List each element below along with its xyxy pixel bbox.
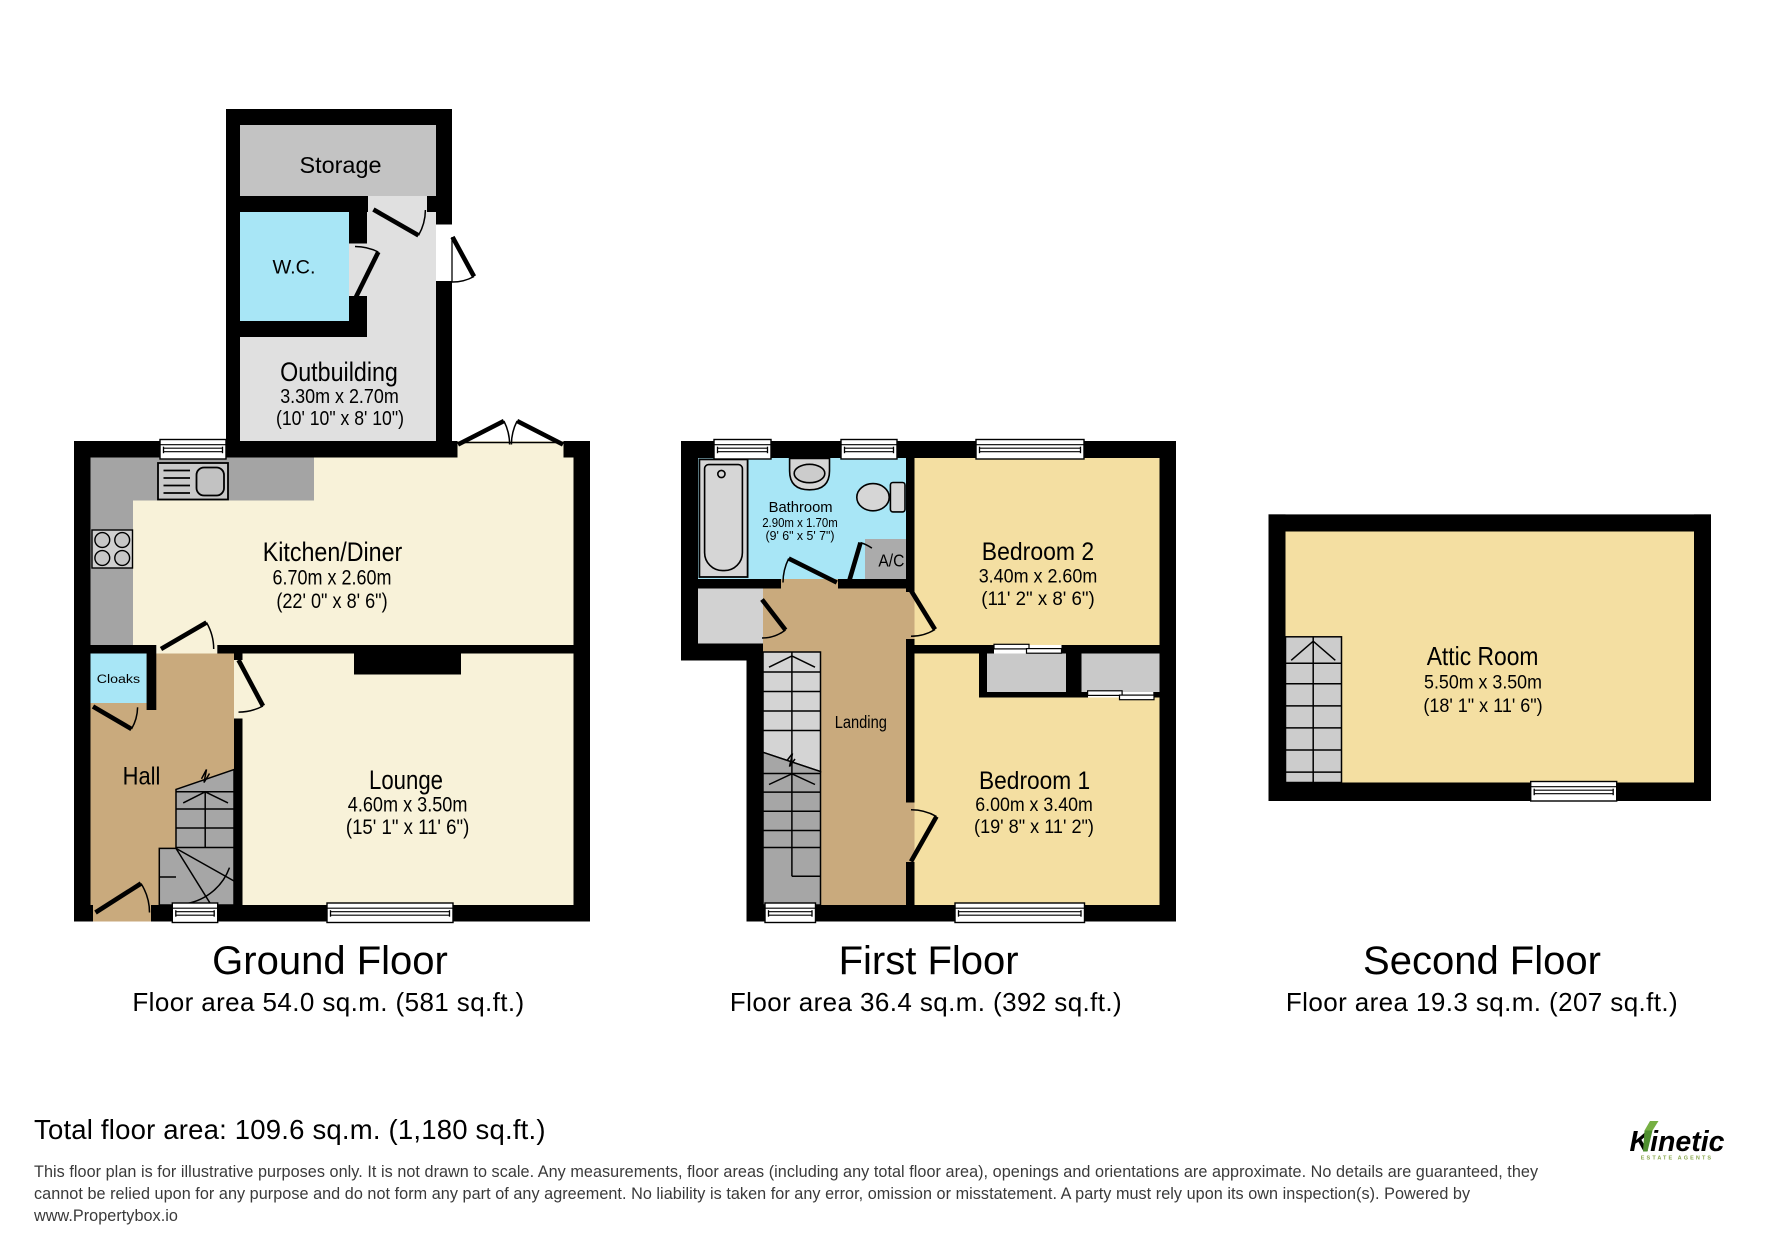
svg-text:A/C: A/C	[878, 550, 904, 570]
svg-text:Ground Floor: Ground Floor	[212, 939, 448, 983]
svg-text:(19' 8" x 11' 2"): (19' 8" x 11' 2")	[974, 816, 1094, 838]
svg-text:Attic Room: Attic Room	[1427, 643, 1539, 671]
svg-text:Bedroom 1: Bedroom 1	[979, 767, 1090, 795]
svg-text:3.30m x 2.70m: 3.30m x 2.70m	[280, 386, 399, 408]
svg-text:cannot be relied upon for any: cannot be relied upon for any purpose an…	[34, 1185, 1471, 1203]
svg-text:Bedroom 2: Bedroom 2	[982, 538, 1094, 566]
svg-text:Floor area 54.0 sq.m. (581 sq.: Floor area 54.0 sq.m. (581 sq.ft.)	[132, 987, 524, 1017]
svg-text:(22' 0" x 8' 6"): (22' 0" x 8' 6")	[276, 590, 387, 613]
svg-text:5.50m x 3.50m: 5.50m x 3.50m	[1424, 672, 1542, 694]
svg-text:Hall: Hall	[123, 763, 161, 791]
svg-text:(11' 2" x 8' 6"): (11' 2" x 8' 6")	[981, 588, 1095, 610]
svg-text:Floor area 36.4 sq.m. (392 sq.: Floor area 36.4 sq.m. (392 sq.ft.)	[730, 987, 1122, 1017]
svg-text:Landing: Landing	[835, 712, 887, 732]
svg-text:Bathroom: Bathroom	[769, 500, 833, 516]
svg-text:3.40m x 2.60m: 3.40m x 2.60m	[979, 566, 1098, 588]
svg-text:Storage: Storage	[300, 152, 382, 178]
svg-text:W.C.: W.C.	[273, 258, 316, 279]
svg-text:(10' 10" x 8' 10"): (10' 10" x 8' 10")	[276, 408, 404, 430]
svg-text:Cloaks: Cloaks	[97, 674, 141, 686]
svg-text:(18' 1" x 11' 6"): (18' 1" x 11' 6")	[1423, 695, 1542, 717]
svg-text:Outbuilding: Outbuilding	[280, 357, 398, 387]
svg-text:Lounge: Lounge	[369, 765, 443, 795]
svg-text:First Floor: First Floor	[839, 939, 1019, 983]
svg-text:ESTATE AGENTS: ESTATE AGENTS	[1641, 1156, 1713, 1162]
svg-text:Second Floor: Second Floor	[1363, 939, 1601, 983]
svg-text:(9' 6" x 5' 7"): (9' 6" x 5' 7")	[766, 528, 835, 543]
svg-text:(15' 1" x 11' 6"): (15' 1" x 11' 6")	[346, 816, 469, 839]
svg-text:Floor area 19.3 sq.m. (207 sq.: Floor area 19.3 sq.m. (207 sq.ft.)	[1286, 987, 1678, 1017]
svg-text:www.Propertybox.io: www.Propertybox.io	[33, 1207, 178, 1225]
svg-text:4.60m x 3.50m: 4.60m x 3.50m	[348, 794, 468, 817]
svg-text:Total floor area: 109.6 sq.m.: Total floor area: 109.6 sq.m. (1,180 sq.…	[34, 1114, 546, 1145]
svg-text:6.70m x 2.60m: 6.70m x 2.60m	[273, 567, 392, 590]
svg-text:Kitchen/Diner: Kitchen/Diner	[263, 537, 403, 567]
svg-text:This floor plan is for illustr: This floor plan is for illustrative purp…	[34, 1163, 1539, 1181]
svg-text:6.00m x 3.40m: 6.00m x 3.40m	[975, 794, 1093, 816]
